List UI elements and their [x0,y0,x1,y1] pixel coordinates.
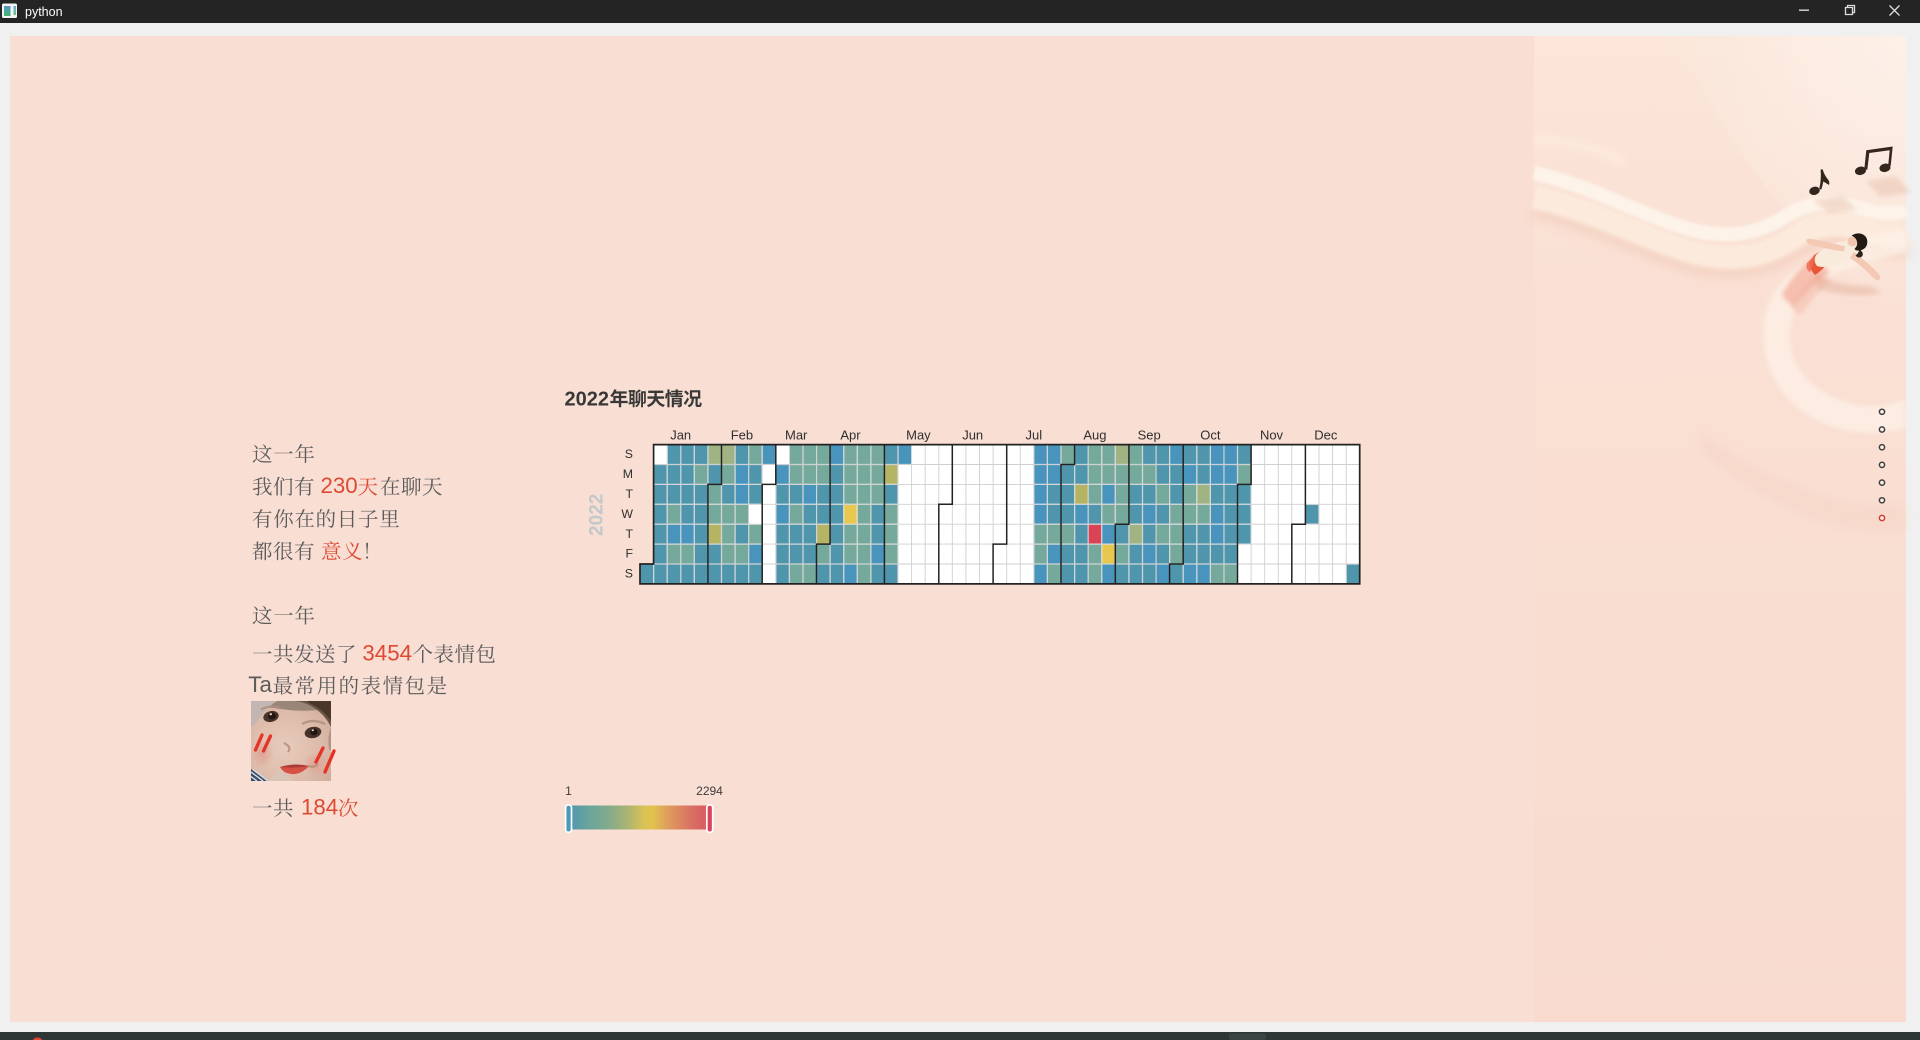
svg-text:Feb: Feb [731,428,753,443]
svg-text:May: May [906,428,931,443]
svg-text:Oct: Oct [1200,428,1221,443]
svg-text:2022: 2022 [587,494,608,536]
svg-text:Jan: Jan [670,428,691,443]
svg-text:W: W [621,507,633,521]
svg-text:2294: 2294 [696,784,723,798]
svg-text:T: T [625,487,633,501]
svg-text:184: 184 [301,795,338,820]
svg-text:Ta: Ta [248,672,272,697]
svg-text:Sep: Sep [1138,428,1161,443]
svg-text:S: S [625,447,633,461]
svg-text:Dec: Dec [1314,428,1338,443]
svg-text:Nov: Nov [1260,428,1284,443]
svg-text:S: S [625,567,633,581]
svg-text:Mar: Mar [785,428,808,443]
svg-text:230: 230 [321,473,358,498]
svg-text:T: T [625,527,633,541]
svg-text:Aug: Aug [1083,428,1106,443]
svg-text:F: F [625,547,633,561]
svg-text:1: 1 [565,784,572,798]
svg-text:Jun: Jun [962,428,983,443]
svg-text:2022: 2022 [565,389,610,411]
svg-text:Apr: Apr [840,428,861,443]
svg-text:3454: 3454 [362,641,412,666]
svg-text:M: M [623,467,633,481]
svg-text:Jul: Jul [1025,428,1042,443]
